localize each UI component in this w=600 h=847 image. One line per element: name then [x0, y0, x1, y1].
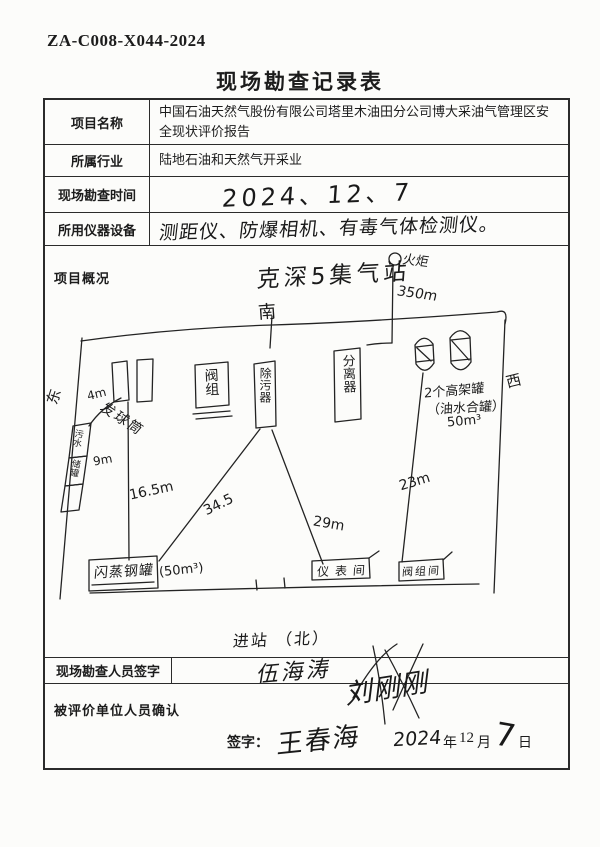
tank-label-line3: 50m³ — [446, 413, 482, 431]
industry-label: 所属行业 — [45, 145, 150, 176]
sign-word: 签字： — [227, 732, 269, 752]
compass-south: 南 — [257, 297, 277, 324]
row-confirmation: 被评价单位人员确认 签字： 王春海 2024 年 12 月 7 日 — [45, 683, 568, 768]
instrument-room-label: 仪表间 — [316, 561, 371, 580]
purifier-label: 除污器 — [257, 367, 275, 403]
scanned-survey-form: ZA-C008-X044-2024 现场勘查记录表 项目名称 中国石油天然气股份… — [0, 0, 600, 847]
confirmation-sign-line: 签字： 王春海 2024 年 12 月 7 日 — [45, 724, 568, 764]
row-industry: 所属行业 陆地石油和天然气开采业 — [45, 144, 568, 176]
equipment-label: 所用仪器设备 — [45, 213, 150, 245]
flash-tank-label: 闪蒸钢罐 — [93, 559, 155, 582]
entrance-note: 进站 （北） — [232, 624, 331, 651]
row-survey-time: 现场勘查时间 2024、12、7 — [45, 176, 568, 212]
date-year-handwritten: 2024 — [392, 727, 442, 752]
valve-group-label: 阀组 — [200, 367, 221, 396]
sketch-drawing — [45, 246, 572, 658]
row-project-overview: 项目概况 — [45, 245, 568, 657]
surveyor-signature-label: 现场勘查人员签字 — [45, 658, 172, 683]
project-name-label: 项目名称 — [45, 100, 150, 144]
document-number: ZA-C008-X044-2024 — [47, 31, 206, 51]
date-year-unit: 年 — [443, 732, 457, 752]
date-month-unit: 月 — [477, 732, 491, 752]
confirmation-label: 被评价单位人员确认 — [54, 700, 180, 719]
survey-time-label: 现场勘查时间 — [45, 177, 150, 212]
elevated-tank-shapes — [415, 331, 471, 371]
valve-room-label: 阀组间 — [401, 562, 441, 579]
site-sketch: 克深5集气站 南 东 西 火炬 350m 发球筒 污水 储罐 阀组 除污器 分离… — [45, 246, 568, 657]
flare-label: 火炬 — [401, 249, 431, 271]
page-title: 现场勘查记录表 — [0, 66, 600, 96]
confirmation-signature: 王春海 — [276, 715, 362, 761]
row-project-name: 项目名称 中国石油天然气股份有限公司塔里木油田分公司博大采油气管理区安全现状评价… — [45, 100, 568, 144]
row-surveyor-signature: 现场勘查人员签字 伍海涛 — [45, 657, 568, 683]
survey-form-table: 项目名称 中国石油天然气股份有限公司塔里木油田分公司博大采油气管理区安全现状评价… — [43, 98, 570, 770]
fence-boundary — [60, 311, 506, 599]
surveyor-signature-area: 伍海涛 — [172, 658, 568, 683]
date-day-handwritten: 7 — [492, 715, 519, 756]
date-month: 12 — [459, 730, 474, 747]
separator-label: 分离器 — [337, 354, 357, 394]
project-name-value: 中国石油天然气股份有限公司塔里木油田分公司博大采油气管理区安全现状评价报告 — [150, 100, 568, 144]
date-day-unit: 日 — [518, 732, 532, 752]
row-equipment: 所用仪器设备 测距仪、防爆相机、有毒气体检测仪。 — [45, 212, 568, 245]
